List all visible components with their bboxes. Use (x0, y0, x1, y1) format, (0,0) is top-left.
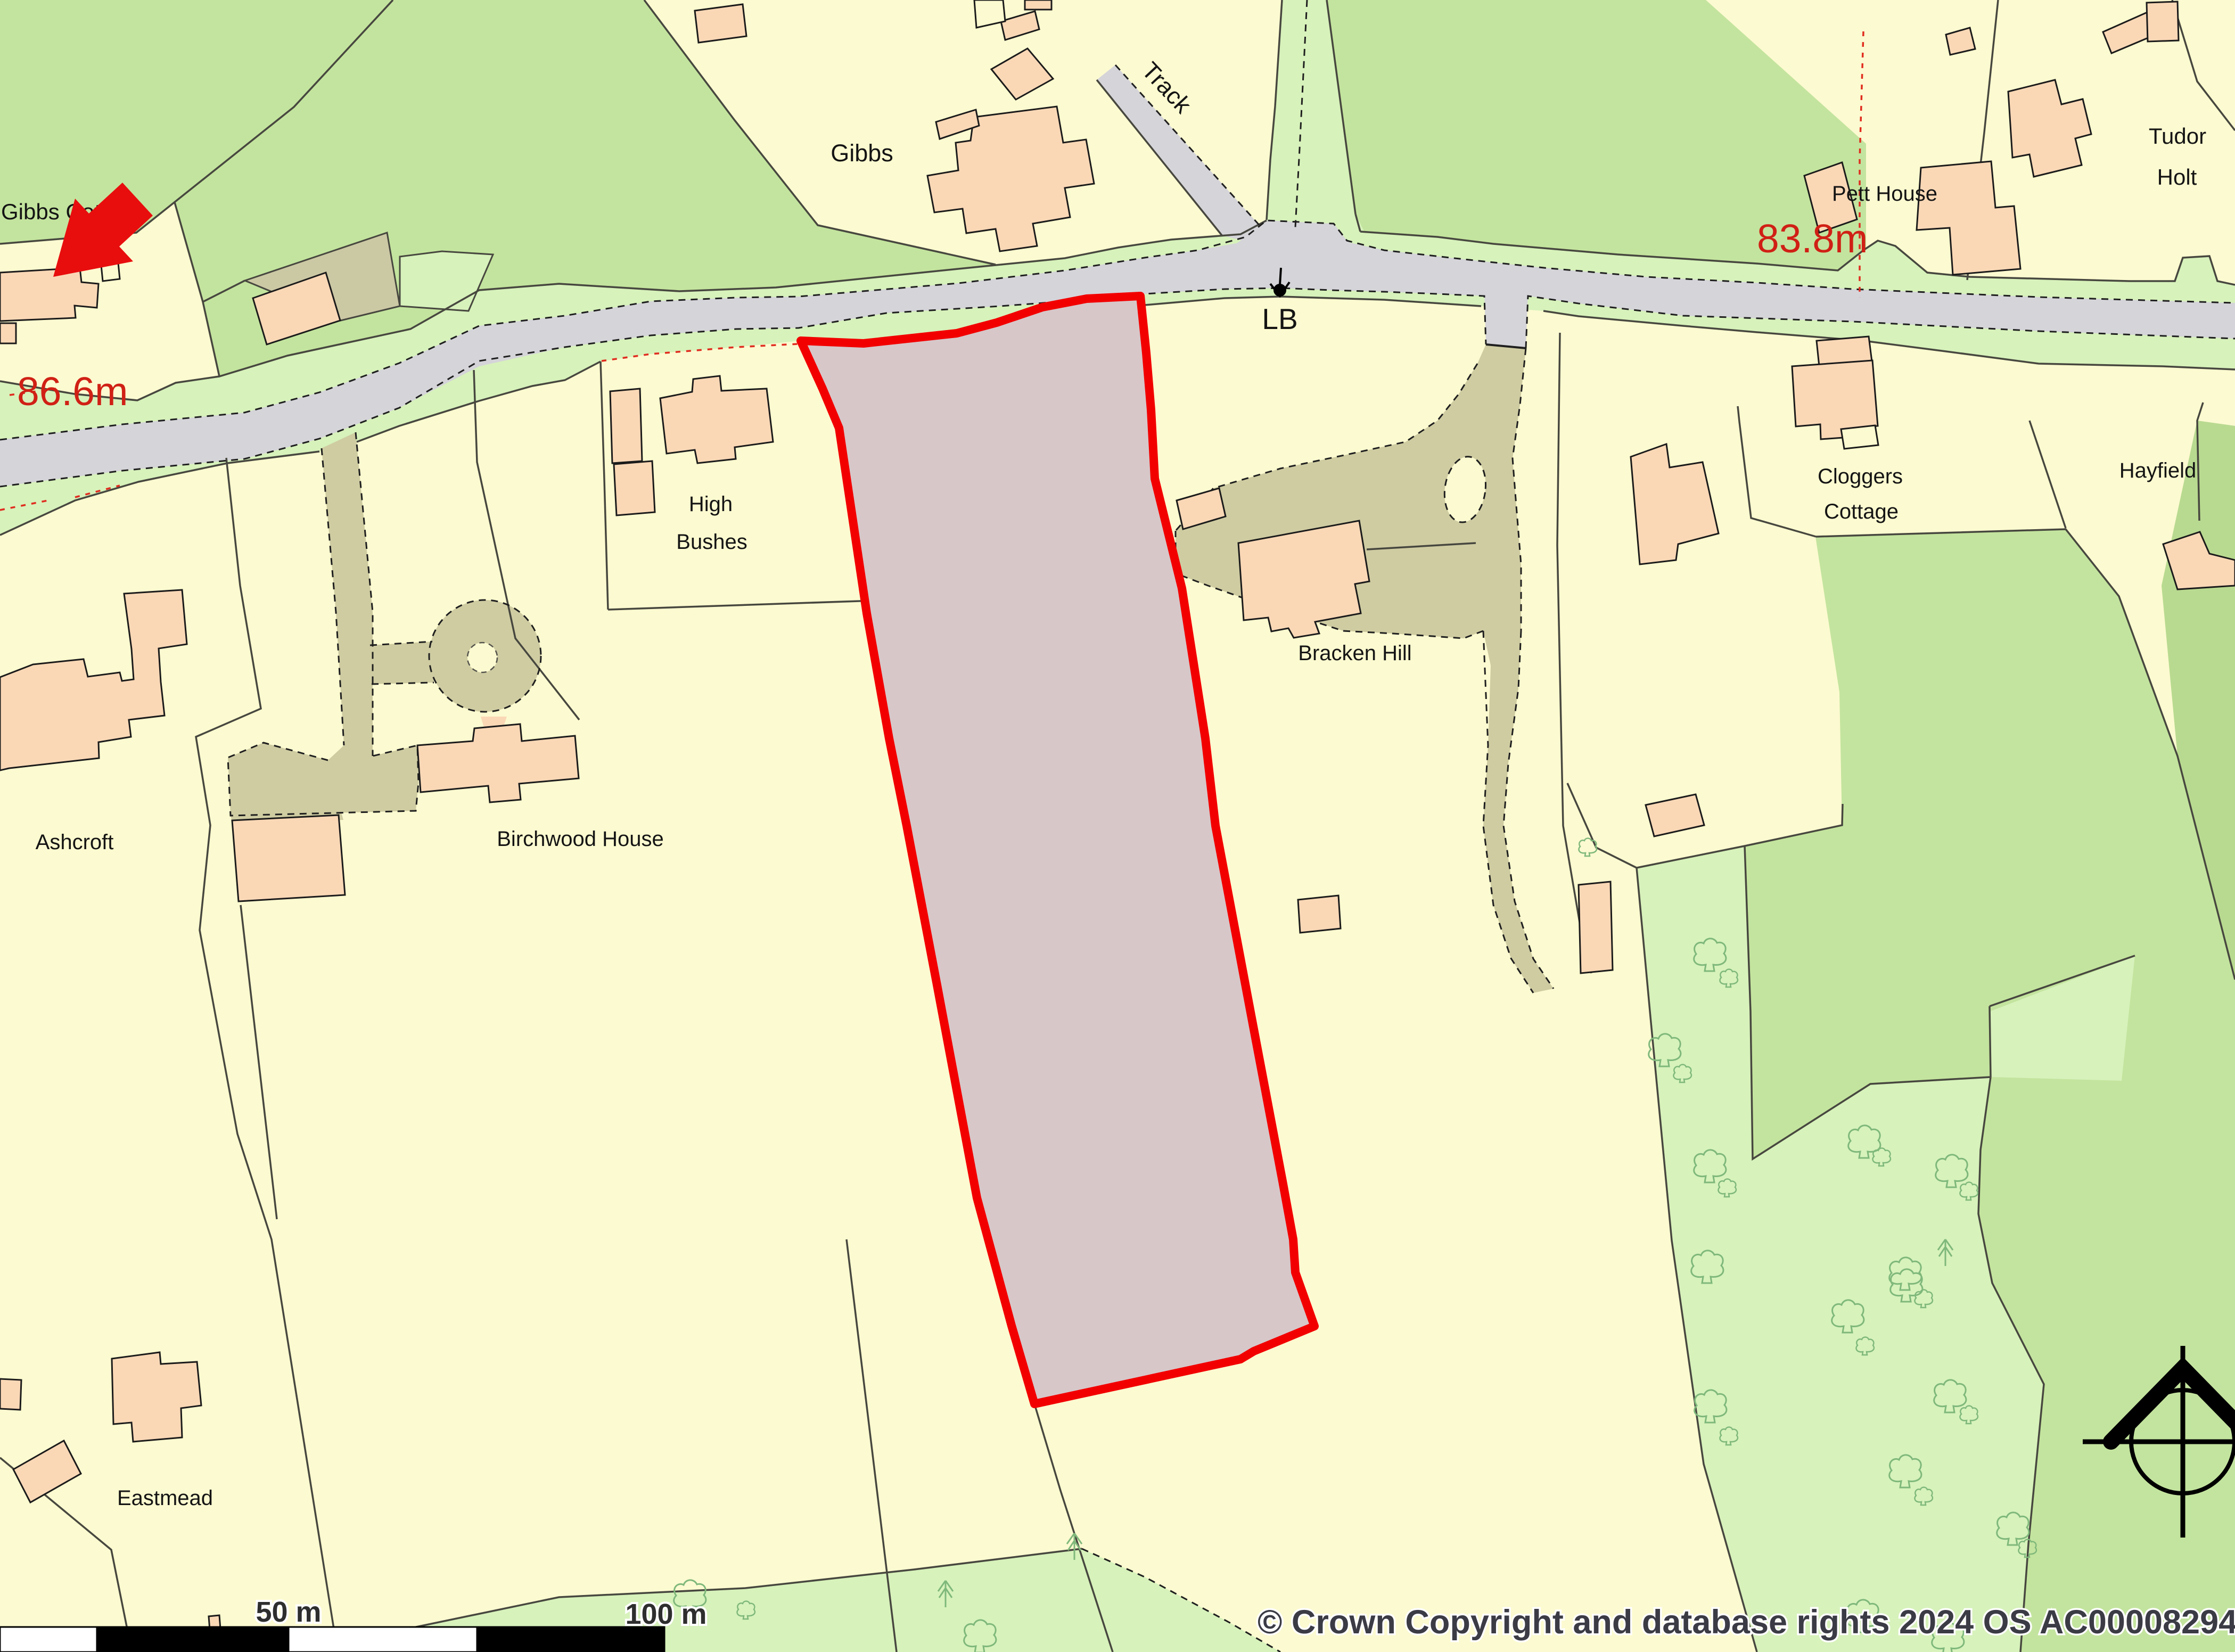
svg-text:Holt: Holt (2157, 165, 2197, 190)
svg-text:86.6m: 86.6m (17, 369, 128, 414)
svg-text:Ashcroft: Ashcroft (36, 831, 114, 854)
svg-text:Hayfield: Hayfield (2119, 459, 2197, 482)
svg-text:100 m: 100 m (625, 1598, 706, 1630)
svg-text:Cottage: Cottage (1824, 500, 1899, 523)
svg-text:Eastmead: Eastmead (117, 1486, 213, 1510)
svg-text:50 m: 50 m (256, 1596, 321, 1628)
svg-text:Bushes: Bushes (676, 530, 747, 554)
svg-text:High: High (689, 492, 733, 516)
svg-text:© Crown Copyright and database: © Crown Copyright and database rights 20… (1258, 1604, 2235, 1641)
svg-text:Bracken Hill: Bracken Hill (1298, 642, 1411, 665)
svg-text:Gibbs: Gibbs (831, 139, 893, 167)
svg-text:Birchwood House: Birchwood House (497, 827, 664, 851)
svg-text:Tudor: Tudor (2149, 124, 2206, 149)
svg-text:Pett House: Pett House (1832, 182, 1937, 206)
svg-text:83.8m: 83.8m (1757, 216, 1868, 261)
svg-text:LB: LB (1262, 302, 1297, 335)
svg-text:Cloggers: Cloggers (1818, 465, 1903, 488)
